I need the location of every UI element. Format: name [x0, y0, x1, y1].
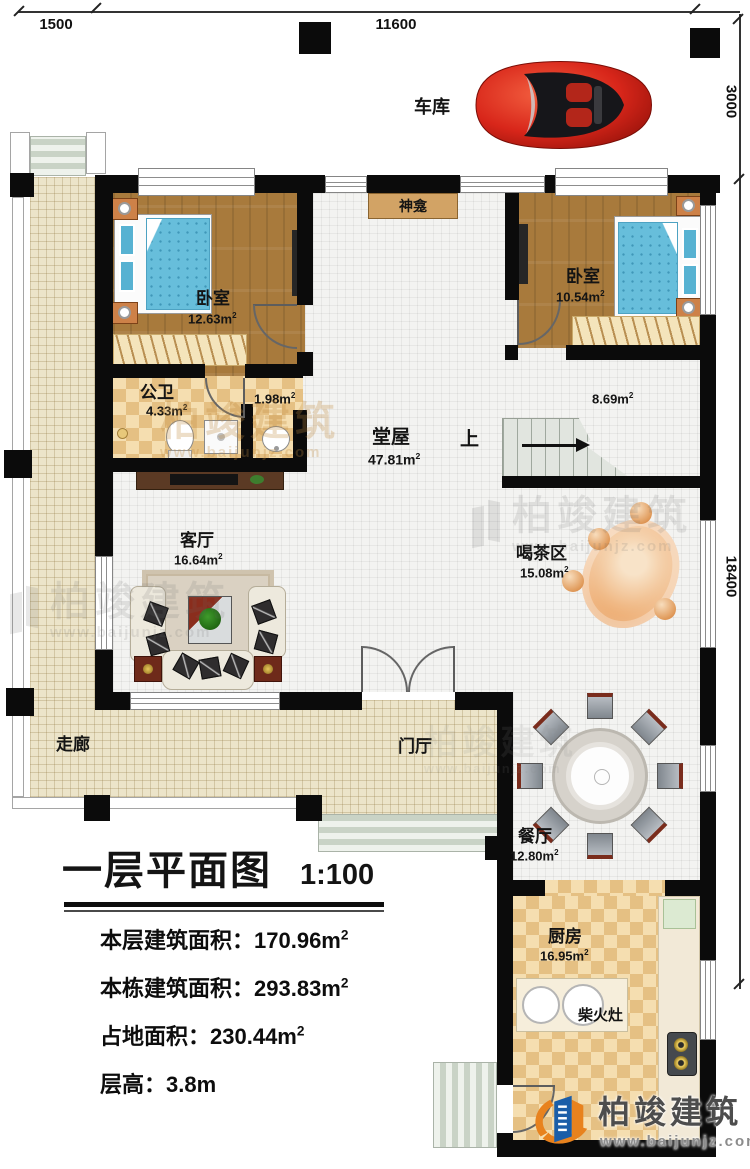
dining-chair: [657, 763, 683, 789]
column: [84, 795, 110, 821]
wall: [280, 692, 362, 710]
room-area-text: 8.69m: [592, 391, 629, 406]
row-value: 230.44m: [210, 1024, 297, 1049]
row-sup: 2: [341, 976, 349, 991]
wall: [513, 880, 545, 896]
wall: [665, 880, 716, 896]
row-value: 3.8m: [166, 1072, 216, 1097]
room-area-sup: 2: [232, 311, 236, 320]
tv-panel: [518, 224, 528, 284]
column: [485, 836, 509, 860]
shower-drain: [217, 433, 225, 441]
title-row-building-area: 本栋建筑面积：293.83m2: [100, 971, 348, 1003]
pillow: [682, 228, 698, 260]
row-sup: 2: [341, 928, 349, 943]
row-label: 占地面积：: [100, 1024, 210, 1049]
wood-stove-label: 柴火灶: [578, 1008, 623, 1024]
car-top-view: [466, 56, 656, 154]
room-area-text: 15.08m: [520, 565, 564, 580]
wall: [245, 364, 303, 378]
wall: [566, 345, 700, 360]
dim-tick: [732, 13, 743, 24]
window: [700, 960, 716, 1040]
title-underline: [64, 902, 384, 907]
pillow: [682, 264, 698, 296]
brand-company: 柏竣建筑: [598, 1096, 742, 1130]
tv: [170, 474, 238, 485]
room-area-text: 10.54m: [556, 289, 600, 304]
kitchen-sink: [663, 899, 696, 929]
room-area-sup: 2: [554, 848, 558, 857]
plan-title: 一层平面图: [62, 850, 272, 892]
kitchen-steps: [433, 1062, 497, 1148]
window: [138, 168, 255, 196]
room-name-text: 餐厅: [518, 827, 552, 846]
row-sup: 2: [297, 1024, 305, 1039]
kitchen-area: 16.95m2: [540, 949, 589, 963]
bathroom-area: 4.33m2: [146, 404, 187, 418]
stair-arrowhead: [576, 438, 590, 452]
bedroom-right-name: 卧室: [566, 268, 600, 286]
tea-stool: [588, 528, 610, 550]
room-area-sup: 2: [600, 289, 604, 298]
wall: [95, 650, 113, 694]
dim-3000: 3000: [723, 72, 740, 132]
sink-drain: [274, 446, 279, 451]
room-area-sup: 2: [584, 948, 588, 957]
toilet: [166, 420, 194, 454]
room-name-text: 喝茶区: [516, 544, 567, 563]
room-name-text: 卧室: [566, 267, 600, 286]
wall: [700, 175, 716, 205]
pillow: [119, 224, 135, 256]
room-area-text: 47.81m: [368, 452, 415, 468]
lamp: [682, 199, 695, 212]
porch-post: [86, 132, 106, 174]
room-name-text: 堂屋: [372, 427, 410, 448]
row-label: 本层建筑面积：: [100, 928, 254, 953]
wall: [95, 175, 113, 558]
room-name-text: 公卫: [140, 383, 174, 402]
wall-hook: [117, 428, 128, 439]
tea-name: 喝茶区: [516, 545, 567, 563]
tea-stool: [630, 502, 652, 524]
dim-line-top: [18, 11, 740, 13]
porch-steps: [30, 136, 86, 176]
title-row-storey-height: 层高：3.8m: [100, 1067, 216, 1099]
dining-chair: [587, 693, 613, 719]
brand-logo-icon: [531, 1088, 593, 1150]
bedroom-right-area: 10.54m2: [556, 290, 605, 304]
wall: [502, 476, 700, 488]
wall: [505, 345, 518, 360]
stair-direction-line: [522, 444, 578, 447]
row-label: 本栋建筑面积：: [100, 976, 254, 1001]
garage-car: [466, 56, 656, 154]
row-label: 层高：: [100, 1072, 166, 1097]
dining-chair: [587, 833, 613, 859]
lamp: [118, 202, 131, 215]
hall-name: 堂屋: [372, 428, 410, 448]
lavatory-area: 1.98m2: [254, 392, 295, 406]
table-plant: [199, 608, 221, 630]
garage-label: 车库: [414, 98, 450, 117]
room-area-sup: 2: [415, 451, 420, 461]
stove-pot: [522, 986, 560, 1024]
dim-1500: 1500: [26, 16, 86, 33]
room-name-text: 厨房: [548, 927, 582, 946]
dim-11600: 11600: [364, 16, 428, 33]
window: [460, 176, 545, 193]
tea-stool: [654, 598, 676, 620]
wall: [367, 175, 460, 193]
room-area-sup: 2: [291, 391, 295, 400]
bed-duvet: [618, 222, 678, 314]
column: [690, 28, 720, 58]
bedroom-left-name: 卧室: [196, 290, 230, 308]
room-area-text: 12.63m: [188, 311, 232, 326]
dim-18400: 18400: [723, 542, 740, 612]
room-area-text: 16.64m: [174, 552, 218, 567]
title-row-floor-area: 本层建筑面积：170.96m2: [100, 923, 348, 955]
foyer-floor: [318, 700, 505, 818]
kitchen-pass-mat: [545, 880, 665, 896]
title-row-land-area: 占地面积：230.44m2: [100, 1019, 304, 1051]
row-value: 170.96m: [254, 928, 341, 953]
stairs-up-label: 上: [460, 430, 479, 450]
title-underline-thin: [64, 910, 384, 912]
kitchen-name: 厨房: [548, 928, 582, 946]
side-table-medallion: [143, 664, 153, 674]
shrine-label: 神龛: [399, 198, 427, 214]
column: [6, 688, 34, 716]
wall: [455, 692, 513, 710]
stair-hall-area: 8.69m2: [592, 392, 633, 406]
decor-plant: [250, 475, 264, 484]
living-name: 客厅: [180, 532, 214, 550]
shrine-cabinet: 神龛: [368, 193, 458, 219]
wall: [497, 710, 513, 1085]
dining-name: 餐厅: [518, 828, 552, 846]
wardrobe: [572, 316, 700, 348]
window: [700, 745, 716, 792]
room-area-text: 12.80m: [510, 848, 554, 863]
living-area: 16.64m2: [174, 553, 223, 567]
dining-table-detail: [594, 769, 610, 785]
cushion: [198, 656, 221, 679]
side-table-medallion: [263, 664, 273, 674]
brand-website: www.baijunjz.com: [600, 1134, 750, 1150]
window: [95, 556, 113, 650]
window: [700, 520, 716, 648]
gas-burner: [674, 1038, 688, 1052]
entry-steps: [318, 814, 505, 852]
porch-post: [10, 132, 30, 174]
gas-burner: [674, 1056, 688, 1070]
floor-plan-canvas: 1500 11600 3000 18400 车库: [0, 0, 750, 1169]
lamp: [118, 306, 131, 319]
corridor-label: 走廊: [56, 736, 90, 754]
wardrobe: [113, 334, 247, 366]
room-name-text: 卧室: [196, 289, 230, 308]
dining-area: 12.80m2: [510, 849, 559, 863]
wall: [505, 193, 519, 300]
wall: [255, 175, 325, 193]
room-area-sup: 2: [183, 403, 187, 412]
wall: [545, 175, 555, 193]
wall: [293, 410, 307, 462]
bathroom-name: 公卫: [140, 384, 174, 402]
room-area-sup: 2: [218, 552, 222, 561]
window: [555, 168, 668, 196]
row-value: 293.83m: [254, 976, 341, 1001]
wall: [113, 458, 307, 472]
window: [325, 176, 367, 193]
hall-area: 47.81m2: [368, 452, 420, 467]
wall: [700, 792, 716, 960]
plan-scale: 1:100: [300, 860, 374, 890]
railing-bottom: [12, 797, 320, 809]
dining-chair: [517, 763, 543, 789]
brand-logo: [531, 1088, 593, 1150]
column: [10, 173, 34, 197]
room-area-sup: 2: [564, 565, 568, 574]
dim-line-right: [739, 14, 741, 989]
room-area-text: 1.98m: [254, 391, 291, 406]
column: [296, 795, 322, 821]
door-leaf: [453, 646, 455, 692]
window: [700, 205, 716, 315]
column: [4, 450, 32, 478]
column: [299, 22, 331, 54]
window: [130, 692, 280, 710]
wall: [95, 692, 130, 710]
bedroom-left-area: 12.63m2: [188, 312, 237, 326]
room-name-text: 客厅: [180, 531, 214, 550]
tea-area: 15.08m2: [520, 566, 569, 580]
room-area-text: 16.95m: [540, 948, 584, 963]
wall: [113, 364, 205, 378]
pillow: [119, 260, 135, 292]
room-area-sup: 2: [629, 391, 633, 400]
lamp: [682, 301, 695, 314]
room-area-text: 4.33m: [146, 403, 183, 418]
foyer-label: 门厅: [398, 738, 432, 756]
wall: [700, 315, 716, 520]
wall: [700, 648, 716, 745]
wall: [297, 193, 313, 305]
